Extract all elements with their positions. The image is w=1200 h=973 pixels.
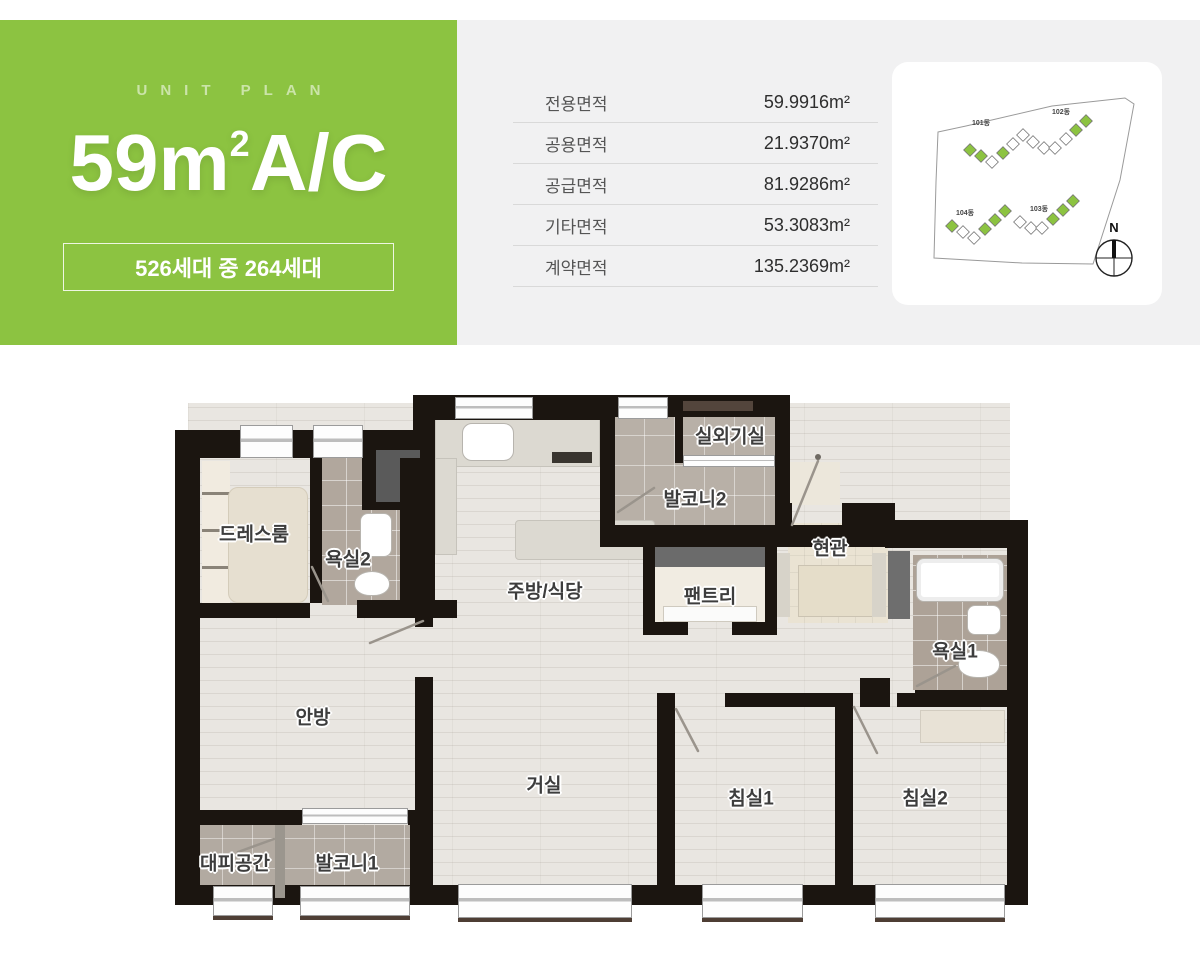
building-label-104: 104동	[956, 208, 974, 218]
site-plan-card: 101동 102동 103동 104동 N	[892, 62, 1162, 305]
room-label-bedroom2: 침실2	[902, 784, 948, 811]
value-unit: m²	[829, 133, 850, 153]
table-row: 공급면적 81.9286m²	[513, 164, 878, 205]
room-label-pantry: 팬트리	[684, 582, 736, 609]
row-label: 기타면적	[545, 213, 608, 238]
table-row: 계약면적 135.2369m²	[513, 246, 878, 287]
value-unit: m²	[829, 174, 850, 194]
row-label: 전용면적	[545, 90, 608, 115]
area-table: 전용면적 59.9916m² 공용면적 21.9370m² 공급면적 81.92…	[513, 82, 878, 287]
table-row: 전용면적 59.9916m²	[513, 82, 878, 123]
building-label-101: 101동	[972, 118, 990, 128]
value-number: 135.2369	[754, 256, 829, 276]
eyebrow-text: UNIT PLAN	[0, 82, 457, 99]
row-label: 공용면적	[545, 131, 608, 156]
value-number: 21.9370	[764, 133, 829, 153]
unit-title-prefix: 59m	[70, 118, 230, 207]
room-label-ac-unit-room: 실외기실	[695, 422, 765, 449]
unit-title: 59m2A/C	[0, 115, 457, 211]
room-label-balcony1: 발코니1	[315, 849, 378, 876]
value-unit: m²	[829, 215, 850, 235]
room-label-kitchen-dining: 주방/식당	[507, 577, 582, 604]
building-label-103: 103동	[1030, 204, 1048, 214]
compass-icon	[1096, 240, 1132, 276]
unit-title-card: UNIT PLAN 59m2A/C 526세대 중 264세대	[0, 20, 457, 345]
room-label-master-bedroom: 안방	[296, 703, 331, 730]
room-label-shelter: 대피공간	[200, 849, 270, 876]
building-label-102: 102동	[1052, 107, 1070, 117]
room-label-entry: 현관	[813, 534, 848, 561]
door-knob	[815, 454, 821, 460]
room-label-balcony2: 발코니2	[663, 485, 726, 512]
floor-plan: 드레스룸 욕실2 주방/식당 발코니2 실외기실 팬트리 현관 욕실1 안방 거…	[170, 395, 1035, 955]
value-unit: m²	[829, 256, 850, 276]
table-row: 공용면적 21.9370m²	[513, 123, 878, 164]
site-plan-map	[892, 62, 1162, 305]
value-number: 53.3083	[764, 215, 829, 235]
unit-title-sup: 2	[230, 123, 250, 164]
value-number: 81.9286	[764, 174, 829, 194]
row-value: 53.3083m²	[764, 215, 850, 236]
row-label: 계약면적	[545, 254, 608, 279]
room-label-living-room: 거실	[527, 771, 562, 798]
value-unit: m²	[829, 92, 850, 112]
room-label-bath1: 욕실1	[932, 637, 978, 664]
row-label: 공급면적	[545, 172, 608, 197]
room-label-dressroom: 드레스룸	[219, 520, 289, 547]
household-badge: 526세대 중 264세대	[63, 243, 394, 291]
row-value: 81.9286m²	[764, 174, 850, 195]
room-label-bath2: 욕실2	[325, 545, 371, 572]
row-value: 21.9370m²	[764, 133, 850, 154]
room-label-bedroom1: 침실1	[728, 784, 774, 811]
row-value: 59.9916m²	[764, 92, 850, 113]
table-row: 기타면적 53.3083m²	[513, 205, 878, 246]
compass-north-label: N	[1104, 220, 1124, 235]
page: UNIT PLAN 59m2A/C 526세대 중 264세대 전용면적 59.…	[0, 0, 1200, 973]
door-swings	[170, 395, 1035, 955]
row-value: 135.2369m²	[754, 256, 850, 277]
value-number: 59.9916	[764, 92, 829, 112]
unit-title-suffix: A/C	[250, 118, 388, 207]
